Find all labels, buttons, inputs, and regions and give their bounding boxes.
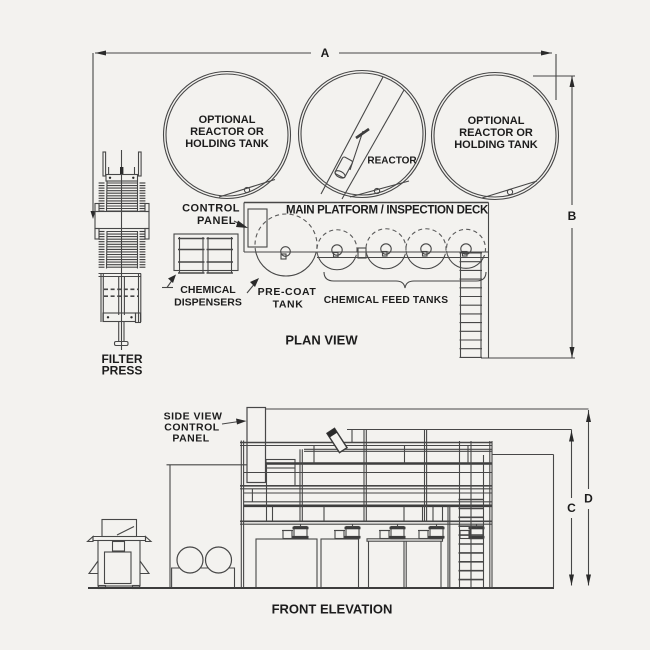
- svg-text:REACTOR OR: REACTOR OR: [459, 127, 533, 139]
- svg-text:CONTROL: CONTROL: [182, 203, 240, 215]
- svg-text:PRE-COAT: PRE-COAT: [258, 286, 317, 298]
- svg-text:OPTIONAL: OPTIONAL: [468, 115, 525, 127]
- svg-text:MAIN PLATFORM / INSPECTION DEC: MAIN PLATFORM / INSPECTION DECK: [286, 205, 489, 217]
- svg-text:B: B: [568, 209, 577, 223]
- svg-text:C: C: [567, 501, 576, 515]
- svg-text:FRONT ELEVATION: FRONT ELEVATION: [272, 602, 393, 617]
- svg-text:CHEMICAL: CHEMICAL: [180, 284, 236, 296]
- svg-text:PANEL: PANEL: [172, 433, 209, 445]
- svg-text:HOLDING TANK: HOLDING TANK: [454, 139, 538, 151]
- svg-text:PLAN VIEW: PLAN VIEW: [285, 333, 358, 348]
- svg-text:A: A: [321, 46, 330, 60]
- svg-text:DISPENSERS: DISPENSERS: [174, 297, 242, 309]
- svg-text:PANEL: PANEL: [197, 215, 236, 227]
- svg-text:HOLDING TANK: HOLDING TANK: [185, 138, 269, 150]
- svg-text:REACTOR OR: REACTOR OR: [190, 126, 264, 138]
- svg-text:PRESS: PRESS: [102, 364, 143, 378]
- svg-text:TANK: TANK: [273, 299, 304, 311]
- svg-text:OPTIONAL: OPTIONAL: [199, 114, 256, 126]
- svg-text:D: D: [584, 492, 593, 506]
- svg-text:CHEMICAL FEED TANKS: CHEMICAL FEED TANKS: [324, 295, 449, 306]
- svg-text:REACTOR: REACTOR: [367, 156, 417, 167]
